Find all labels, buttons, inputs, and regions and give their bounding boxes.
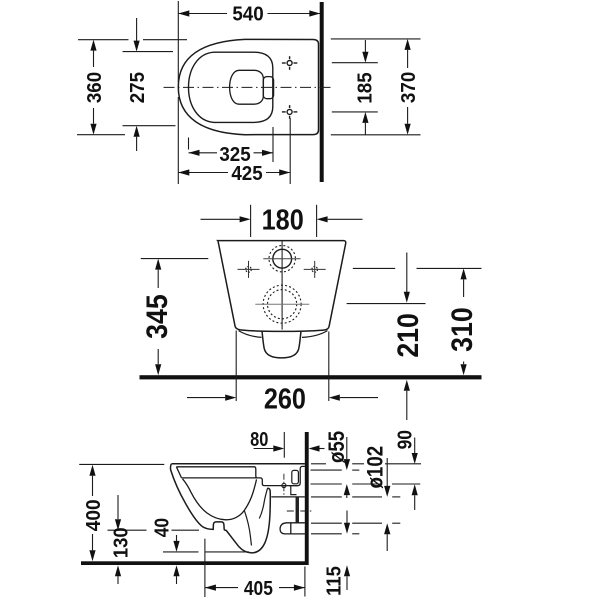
svg-text:40: 40 [151,518,174,537]
svg-text:370: 370 [397,72,420,103]
svg-text:210: 210 [391,313,425,358]
svg-text:345: 345 [141,294,175,339]
svg-text:115: 115 [323,566,346,596]
svg-text:360: 360 [83,72,106,103]
svg-text:80: 80 [250,427,268,450]
svg-text:425: 425 [231,162,263,185]
svg-text:405: 405 [244,578,273,600]
svg-text:310: 310 [445,307,479,352]
svg-text:ø102: ø102 [364,446,388,489]
svg-text:185: 185 [354,72,377,104]
svg-text:180: 180 [262,203,304,236]
svg-text:400: 400 [82,499,105,531]
svg-text:260: 260 [264,382,306,415]
svg-text:275: 275 [126,72,149,104]
svg-text:90: 90 [394,430,417,449]
svg-text:ø55: ø55 [325,431,349,463]
svg-text:130: 130 [109,527,132,558]
svg-text:540: 540 [232,3,263,26]
